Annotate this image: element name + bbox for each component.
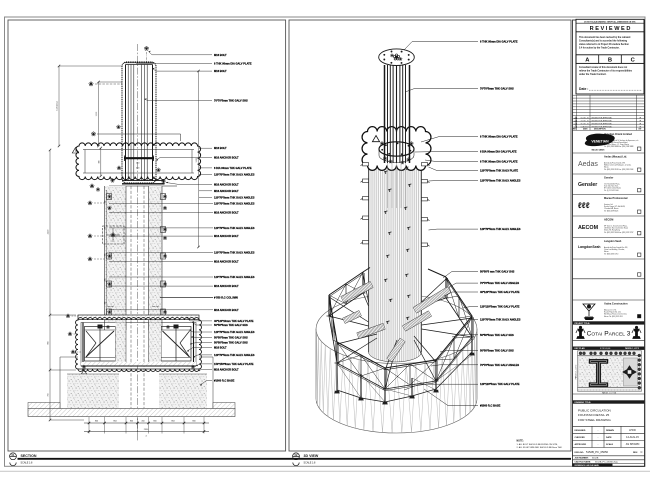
- svg-text:DATE: DATE: [606, 436, 612, 439]
- svg-text:DRAWING TITLE:: DRAWING TITLE:: [575, 401, 592, 404]
- svg-text:Date :: Date :: [579, 87, 588, 91]
- svg-text:SECTION: SECTION: [21, 454, 37, 458]
- svg-text:500: 500: [105, 201, 107, 204]
- svg-text:#2000 R.C BASE: #2000 R.C BASE: [480, 404, 501, 408]
- svg-text:DESCRIPTION: DESCRIPTION: [594, 129, 606, 131]
- svg-text:50*50*5mm THK GALV SHS: 50*50*5mm THK GALV SHS: [214, 323, 248, 327]
- svg-text:M16 ANCHOR BOLT: M16 ANCHOR BOLT: [214, 210, 239, 214]
- svg-text:750: 750: [48, 394, 50, 397]
- svg-text:5152B_PC_05050: 5152B_PC_05050: [586, 450, 608, 454]
- svg-text:10-JUL-15: 10-JUL-15: [581, 118, 589, 120]
- svg-text:120*70*5mm THK GALV PLATE: 120*70*5mm THK GALV PLATE: [480, 169, 518, 173]
- svg-text:CAD FILE NAME:: CAD FILE NAME:: [575, 461, 592, 464]
- svg-text:120*70*5mm THK GALV ANGLES: 120*70*5mm THK GALV ANGLES: [214, 226, 255, 230]
- svg-text:6 DIA 90mm THK GALV PLATE: 6 DIA 90mm THK GALV PLATE: [214, 166, 252, 170]
- svg-text:#1000 R.C BASE: #1000 R.C BASE: [214, 378, 235, 382]
- svg-text:14-AUG-15: 14-AUG-15: [626, 436, 639, 439]
- svg-text:PROJECT TITLE:: PROJECT TITLE:: [575, 323, 591, 325]
- svg-text:500: 500: [105, 279, 107, 282]
- svg-text:NOTE:: NOTE:: [517, 441, 524, 443]
- svg-text:JOB NUMBER:: JOB NUMBER:: [575, 458, 589, 460]
- svg-text:under the Trade Contract.: under the Trade Contract.: [579, 73, 607, 76]
- svg-text:status referred to in Proj: status referred to in Project Procedure …: [579, 43, 630, 46]
- svg-text:M16 ANCHOR BOLT: M16 ANCHOR BOLT: [214, 260, 239, 264]
- svg-text:PARCEL 1, LOT 2: PARCEL 1, LOT 2: [574, 365, 577, 379]
- svg-text:Tel: (853) 2878 6625: Tel: (853) 2878 6625: [604, 210, 618, 212]
- svg-text:Gensler: Gensler: [578, 182, 597, 188]
- svg-text:50*50*5mm THK GALV SHS: 50*50*5mm THK GALV SHS: [480, 348, 514, 352]
- svg-text:AECOM: AECOM: [604, 219, 613, 222]
- svg-text:LangdonSeah: LangdonSeah: [578, 245, 600, 249]
- svg-text:M16 ANCHOR BOLT: M16 ANCHOR BOLT: [214, 189, 239, 193]
- svg-text:24-JUL-15: 24-JUL-15: [581, 121, 589, 123]
- svg-text:AECOM: AECOM: [578, 225, 599, 231]
- svg-text:FOUNTAIN DETAIL 25: FOUNTAIN DETAIL 25: [578, 413, 610, 417]
- svg-text:120*70*5mm THK GALV ANGLES: 120*70*5mm THK GALV ANGLES: [214, 201, 255, 205]
- svg-text:R E V I E W E D: R E V I E W E D: [590, 26, 631, 32]
- svg-text:800: 800: [95, 421, 98, 423]
- svg-text:FOR STEEL DRAWING: FOR STEEL DRAWING: [578, 418, 611, 422]
- svg-text:Tel: (1) 212 492 1400: Tel: (1) 212 492 1400: [604, 190, 619, 192]
- svg-text:70*70*5mm THK GALV SHS: 70*70*5mm THK GALV SHS: [214, 99, 248, 103]
- svg-text:40*120*70mm THK GALV PLATE: 40*120*70mm THK GALV PLATE: [480, 290, 520, 294]
- svg-text:M16 ANCHOR BOLT: M16 ANCHOR BOLT: [214, 234, 239, 238]
- svg-text:Langdon Seah: Langdon Seah: [604, 240, 622, 243]
- svg-text:6 THK 90mm DIA GALV PLATE: 6 THK 90mm DIA GALV PLATE: [480, 160, 518, 164]
- svg-text:M16 BOLT: M16 BOLT: [214, 69, 227, 73]
- svg-text:120*70*5mm THK GALV ANGLES: 120*70*5mm THK GALV ANGLES: [214, 353, 255, 357]
- svg-text:M16 ANCHOR BOLT: M16 ANCHOR BOLT: [214, 284, 239, 288]
- svg-text:REFERENCE CAD FILE NAME:: REFERENCE CAD FILE NAME:: [575, 464, 600, 467]
- svg-text:800: 800: [48, 342, 50, 345]
- svg-text:800: 800: [153, 421, 156, 423]
- svg-text:120*70*5mm THK GALV ANGLES: 120*70*5mm THK GALV ANGLES: [214, 195, 255, 199]
- svg-text:Consultant review of this: Consultant review of this document does …: [579, 66, 627, 69]
- svg-text:Tel: (853) 2882 8888 Fax: (85: Tel: (853) 2882 8888 Fax: (853) 2882 888…: [604, 146, 634, 148]
- svg-text:5152B: 5152B: [592, 458, 599, 460]
- svg-text:ISSUED FOR APPROVAL: ISSUED FOR APPROVAL: [592, 120, 612, 123]
- svg-text:M16 BOLT: M16 BOLT: [214, 146, 227, 150]
- svg-text:M16 ANCHOR BOLT: M16 ANCHOR BOLT: [214, 308, 239, 312]
- svg-text:M16 ANCHOR BOLT: M16 ANCHOR BOLT: [214, 367, 239, 371]
- svg-text:PARCEL 1, LOT 2: PARCEL 1, LOT 2: [625, 347, 639, 350]
- svg-text:DESIGNED: DESIGNED: [575, 430, 586, 432]
- svg-text:50*50*5mm THK GALV SHS: 50*50*5mm THK GALV SHS: [480, 333, 514, 337]
- svg-text:M16 BOLT: M16 BOLT: [214, 346, 227, 350]
- svg-text:5,365: 5,365: [196, 158, 198, 163]
- svg-text:VENETIAN: VENETIAN: [591, 139, 609, 143]
- svg-text:120*70*5mm THK GALV ANGLES: 120*70*5mm THK GALV ANGLES: [480, 178, 521, 182]
- svg-text:APPROVED: APPROVED: [575, 443, 587, 446]
- svg-text:6 DIA 90mm DIA GALV PLATE: 6 DIA 90mm DIA GALV PLATE: [480, 150, 517, 154]
- svg-text:120*120*5mm THK GALV PLATE: 120*120*5mm THK GALV PLATE: [480, 382, 520, 386]
- svg-text:C: C: [641, 450, 643, 454]
- svg-text:6 THK 90mm DIA GALV PLATE: 6 THK 90mm DIA GALV PLATE: [480, 134, 518, 138]
- svg-text:50*50*5mm THK GALV SHS: 50*50*5mm THK GALV SHS: [214, 341, 248, 345]
- svg-text:M16 ANCHOR BOLT: M16 ANCHOR BOLT: [214, 156, 239, 160]
- svg-text:500: 500: [105, 302, 107, 305]
- svg-text:70*70*5mm THK GALV ANGLES: 70*70*5mm THK GALV ANGLES: [480, 281, 519, 285]
- svg-text:50*50*5mm THK GALV SHS: 50*50*5mm THK GALV SHS: [214, 335, 248, 339]
- svg-text:3D VIEW: 3D VIEW: [304, 454, 319, 458]
- svg-text:relieve the Trade Contractor: relieve the Trade Contractor of its resp…: [579, 69, 633, 72]
- svg-text:Freq. kg/f: Freq. kg/f: [152, 306, 159, 308]
- svg-text:DWG NO:: DWG NO:: [575, 452, 585, 454]
- svg-text:120*70*5mm THK GALV ANGLES: 120*70*5mm THK GALV ANGLES: [214, 172, 255, 176]
- svg-text:800: 800: [130, 421, 133, 423]
- svg-text:M16 ANCHOR BOLT: M16 ANCHOR BOLT: [214, 182, 239, 186]
- svg-text:M16 BOLT: M16 BOLT: [214, 53, 227, 57]
- svg-text:Tel: (852) 3922 9000 Fax: (85: Tel: (852) 3922 9000 Fax: (852) 3922 979…: [604, 232, 634, 234]
- svg-text:4,420: 4,420: [48, 230, 50, 235]
- svg-text:6 THK 90mm DIA GALV PLATE: 6 THK 90mm DIA GALV PLATE: [214, 62, 252, 66]
- svg-text:120*70*5mm THK GALV ANGLES: 120*70*5mm THK GALV ANGLES: [480, 317, 521, 321]
- svg-text:SCALE: SCALE: [606, 443, 614, 446]
- svg-text:120*70*5mm THK GALV ANGLES: 120*70*5mm THK GALV ANGLES: [214, 275, 255, 279]
- svg-text:70*70*5mm THK GALV SHS: 70*70*5mm THK GALV SHS: [480, 87, 514, 91]
- svg-text:SCALE 1:8: SCALE 1:8: [21, 461, 33, 464]
- svg-text:120*70*5mm THK GALV ANGLES: 120*70*5mm THK GALV ANGLES: [214, 330, 255, 334]
- svg-text:DRAWN: DRAWN: [606, 429, 614, 432]
- svg-text:ISSUED FOR APPROVAL: ISSUED FOR APPROVAL: [592, 117, 612, 120]
- svg-text:Freq. kg/f: Freq. kg/f: [107, 306, 114, 308]
- svg-text:AS SHOWN: AS SHOWN: [626, 443, 640, 446]
- svg-text:(Macau) CO. LTD.: (Macau) CO. LTD.: [604, 310, 617, 312]
- svg-text:Tel: (853) 2833 1710: Tel: (853) 2833 1710: [604, 253, 618, 255]
- svg-text:500: 500: [105, 254, 107, 257]
- svg-text:864: 864: [113, 421, 116, 423]
- svg-text:REV:: REV:: [633, 452, 638, 454]
- svg-text:KEY PLAN: KEY PLAN: [575, 347, 586, 350]
- svg-text:# 550 R.C COLUMN: # 550 R.C COLUMN: [214, 296, 238, 300]
- svg-text:Tel: (853) 2833 1133 Fax: (85: Tel: (853) 2833 1133 Fax: (853) 2833 110…: [604, 169, 633, 171]
- svg-text:B: B: [608, 58, 612, 64]
- svg-text:70*70*5mm THK GALV ANGLES: 70*70*5mm THK GALV ANGLES: [480, 363, 519, 367]
- svg-text:Yadea Construction: Yadea Construction: [604, 303, 628, 306]
- svg-text:Macau Professional: Macau Professional: [604, 197, 628, 200]
- svg-text:Macau: Macau: [604, 167, 609, 169]
- svg-text:1. ALL BOLT SHOULD BE FIXING O: 1. ALL BOLT SHOULD BE FIXING ON SITE,: [517, 443, 559, 446]
- svg-text:ISSUED FOR APPROVAL: ISSUED FOR APPROVAL: [592, 123, 612, 126]
- svg-text:6 THK 90mm DIA GALV PLATE: 6 THK 90mm DIA GALV PLATE: [480, 40, 518, 44]
- svg-text:150*150*8mm THK GALV PLATE: 150*150*8mm THK GALV PLATE: [214, 362, 254, 366]
- svg-text:120*70*5mm THK GALV ANGLES: 120*70*5mm THK GALV ANGLES: [480, 227, 521, 231]
- svg-text:500: 500: [105, 227, 107, 230]
- svg-text:1,125: 1,125: [96, 112, 98, 117]
- svg-text:Aedas (Macau) Ltd.: Aedas (Macau) Ltd.: [604, 156, 627, 159]
- svg-text:Consultants(s) and is accor: Consultants(s) and is accorded the follo…: [579, 39, 628, 42]
- svg-text:COTAI PARCEL 3: COTAI PARCEL 3: [587, 331, 631, 338]
- svg-text:N.T.S/1:5,000: N.T.S/1:5,000: [600, 348, 610, 350]
- svg-text:Gensler: Gensler: [604, 177, 613, 180]
- svg-text:800: 800: [192, 421, 195, 423]
- svg-text:1,545 (step): 1,545 (step): [56, 101, 59, 111]
- svg-text:LHKD: LHKD: [629, 429, 636, 432]
- svg-text:864: 864: [171, 421, 174, 423]
- svg-text:40*120*10mm THK GALV PLATE: 40*120*10mm THK GALV PLATE: [214, 319, 254, 323]
- svg-text:120*70*5mm THK GALV ANGLES: 120*70*5mm THK GALV ANGLES: [214, 251, 255, 255]
- svg-text:50*50*5 mm THK GALV SHS: 50*50*5 mm THK GALV SHS: [480, 269, 515, 273]
- svg-text:DO NOT SCALE DRAWING. VERIFY A: DO NOT SCALE DRAWING. VERIFY ALL DIMENSI…: [584, 20, 636, 23]
- svg-text:31-JUL-15: 31-JUL-15: [581, 124, 589, 126]
- svg-text:SCALE 1:8: SCALE 1:8: [304, 461, 316, 464]
- svg-text:This document has been revised: This document has been revised by the re…: [579, 36, 631, 39]
- svg-text:Macau: Macau: [604, 251, 609, 253]
- svg-text:ℓℓℓ: ℓℓℓ: [578, 201, 590, 210]
- svg-text:CHECKED: CHECKED: [575, 437, 586, 439]
- svg-text:600: 600: [99, 161, 101, 164]
- svg-text:120*120*5mm THK GALV PLATE: 120*120*5mm THK GALV PLATE: [480, 304, 520, 308]
- svg-text:PUBLIC CIRCULATION: PUBLIC CIRCULATION: [578, 409, 611, 413]
- svg-text:5.4 for action by the Tra: 5.4 for action by the Trade Contractor.: [579, 47, 620, 50]
- svg-text:Aedas: Aedas: [578, 161, 598, 168]
- svg-text:Macau Tel: (853) 2870 1111: Macau Tel: (853) 2870 1111: [604, 316, 623, 318]
- svg-text:Rua de Pequim No. 123,: Rua de Pequim No. 123,: [604, 312, 622, 314]
- svg-text:450: 450: [141, 421, 144, 423]
- svg-text:MACAO SANDS: MACAO SANDS: [592, 149, 606, 152]
- svg-text:2. ALL FILLET WELDED SHOULD BE: 2. ALL FILLET WELDED SHOULD BE 8mm THK.: [517, 446, 563, 449]
